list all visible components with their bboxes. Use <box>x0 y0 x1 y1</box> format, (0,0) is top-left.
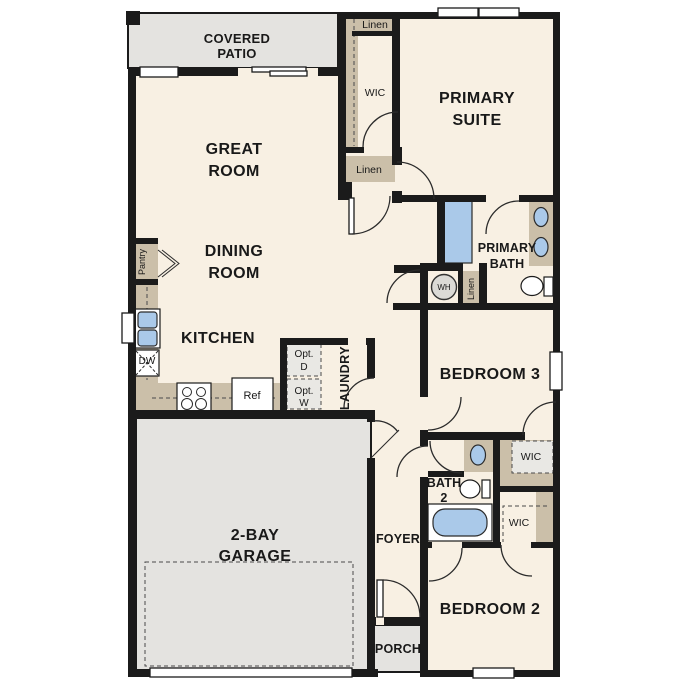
foyer-label: FOYER <box>376 532 420 546</box>
wic-bed3-label: WIC <box>521 451 542 463</box>
linen-mid-label: Linen <box>356 164 382 176</box>
kitchen-label: KITCHEN <box>181 330 255 347</box>
opt-dryer-label-2: D <box>300 362 307 373</box>
range-box <box>177 383 211 412</box>
kitchen-sink-basin-1 <box>138 312 157 328</box>
great-room-door-leaf <box>349 198 354 234</box>
garage-label-2: GARAGE <box>219 548 292 565</box>
opt-washer-label-2: W <box>299 398 309 409</box>
wic-primary-label: WIC <box>365 87 386 99</box>
great-room-label-2: ROOM <box>208 163 259 180</box>
bath2-label-2: 2 <box>440 491 447 505</box>
floor-plan-drawing: COVERED PATIO GREAT ROOM DINING ROOM KIT… <box>0 0 687 687</box>
primary-toilet-tank <box>544 277 553 296</box>
laundry-label: LAUNDRY <box>338 346 352 410</box>
wic-bed2-label: WIC <box>509 517 530 529</box>
primary-sink-1 <box>534 208 548 227</box>
range <box>177 383 211 412</box>
garage-label: 2-BAY <box>231 527 280 544</box>
refrigerator-label: Ref <box>243 390 261 402</box>
bath2-toilet-bowl <box>460 480 480 498</box>
floor-plan: COVERED PATIO GREAT ROOM DINING ROOM KIT… <box>0 0 687 687</box>
primary-suite-window-2 <box>479 8 519 17</box>
porch-label: PORCH <box>375 642 421 656</box>
bath2-label: BATH <box>427 476 462 490</box>
bath2-toilet-tank <box>482 480 490 498</box>
garage-floor <box>136 418 371 671</box>
bath2-sink <box>471 445 486 465</box>
primary-bath-label-2: BATH <box>490 257 525 271</box>
patio-window <box>140 67 178 77</box>
covered-patio-label: COVERED <box>204 31 270 46</box>
shower <box>444 200 472 263</box>
primary-bath-label: PRIMARY <box>478 241 537 255</box>
garage-vehicle-door <box>150 668 352 677</box>
covered-patio-label-2: PATIO <box>217 46 256 61</box>
great-room-label: GREAT <box>206 141 263 158</box>
front-door-gap <box>376 617 384 625</box>
bedroom2-label: BEDROOM 2 <box>440 601 541 618</box>
water-heater-label: WH <box>437 283 451 292</box>
bedroom3-label: BEDROOM 3 <box>440 366 541 383</box>
primary-suite-label-2: SUITE <box>452 112 501 129</box>
front-door-leaf <box>377 580 383 617</box>
pantry-label: Pantry <box>137 248 147 275</box>
primary-suite-label: PRIMARY <box>439 90 515 107</box>
kitchen-sink-basin-2 <box>138 330 157 346</box>
primary-suite-window-1 <box>438 8 478 17</box>
bedroom2-window <box>473 668 514 678</box>
wic-bed2-shelf-strip <box>536 492 553 542</box>
dining-room-label-2: ROOM <box>208 265 259 282</box>
kitchen-sink <box>135 309 160 348</box>
dining-room-label: DINING <box>205 243 263 260</box>
dishwasher-label: DW <box>139 356 156 367</box>
patio-slider-panel-2 <box>270 71 307 76</box>
opt-dryer-label: Opt. <box>295 349 314 360</box>
patio-post <box>126 11 140 25</box>
bedroom3-window <box>550 352 562 390</box>
bathtub <box>433 509 487 536</box>
linen-upper-label: Linen <box>362 19 388 31</box>
kitchen-window <box>122 313 134 343</box>
primary-toilet-bowl <box>521 277 543 296</box>
opt-washer-label: Opt. <box>295 386 314 397</box>
wic-primary-shelf-strip <box>346 17 358 147</box>
linen-hall-label: Linen <box>466 278 476 300</box>
